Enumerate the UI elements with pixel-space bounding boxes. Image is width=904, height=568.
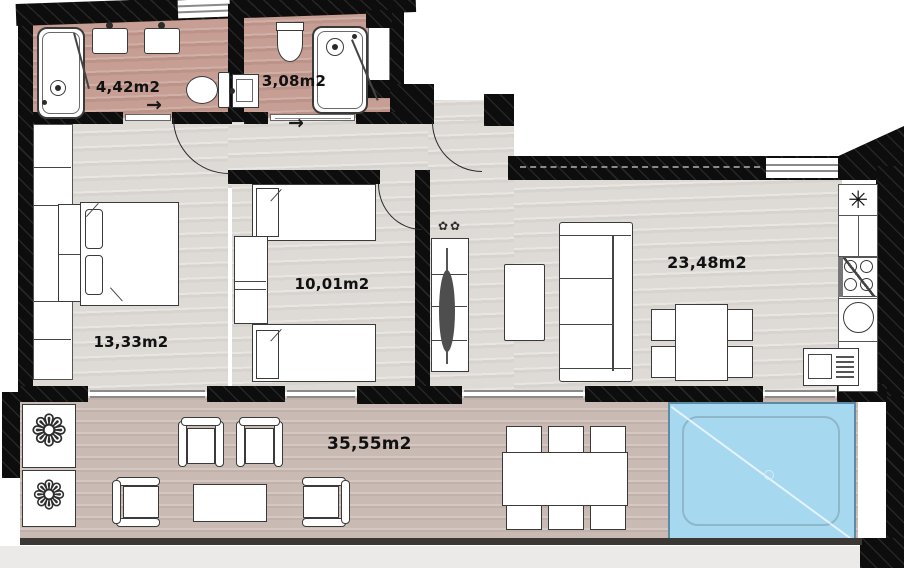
wall-living-top [508,156,840,180]
wall-boundary-4 [585,386,763,402]
entry-arrow-hall: → [288,114,304,133]
wall-terrace-left [2,392,20,478]
planter-top-flower-icon: ❁ [22,410,76,454]
wall-boundary-3 [357,386,462,404]
shower-2-drain-dot [332,44,338,50]
glass-door-2 [287,390,355,392]
hob [840,257,878,297]
outside-area-right [514,92,904,158]
sink-left [92,28,128,54]
shower-2-head-dot [352,34,357,39]
kitchen-sink [843,302,874,333]
glass-door-1b [90,396,205,398]
area-label-bedroom-double: 13,33m2 [92,333,170,351]
shower-head-dot [42,100,47,105]
wall-under-bath2-left [244,112,268,124]
terrace-armchair-2 [236,417,283,467]
outside-area-top [404,0,904,92]
wall-outer-right [876,166,904,398]
terrace-bottom-edge [20,538,862,545]
tv-screen [439,270,455,352]
kitchen-appliance [803,348,859,386]
terrace-armchair-1 [178,417,224,467]
area-label-bedroom-twin: 10,01m2 [293,275,371,293]
sink-2 [232,74,259,108]
wall-above-window [366,10,392,28]
entry-arrow-bathroom: → [146,96,162,115]
coffee-table-living [504,264,545,341]
pool [668,402,856,542]
ground-strip [0,546,904,568]
terrace-armchair-4 [300,477,350,527]
pillow-2 [85,255,103,295]
floor-plan: 4,42m2 → 3,08m2 → 13,33m2 10,01m2 ✿✿ [0,0,904,568]
area-label-terrace: 35,55m2 [327,434,409,454]
dining-table-living [675,304,728,381]
wall-outer-left [18,14,33,396]
hob-side-strip [838,257,843,297]
toilet-bowl [186,76,218,104]
single-bed-bottom-pillow [256,330,279,379]
wall-boundary-2 [207,386,285,402]
tv-plant-icon: ✿✿ [432,220,468,232]
glass-door-4 [765,390,835,392]
pool-drain [764,470,774,480]
area-label-living: 23,48m2 [666,253,748,272]
wall-bedroom-twin-top [228,170,380,184]
wall-dashed-line [520,166,760,168]
glass-door-4b [765,396,835,398]
sink-left-tap [106,22,113,29]
window-bathroom [368,28,390,80]
terrace-armchair-3 [112,477,162,527]
wall-entry-right [484,94,514,126]
glass-door-2b [287,396,355,398]
glass-door-3 [464,390,583,392]
wall-under-bath2-right [356,112,404,124]
sink-right [144,28,180,54]
shower-tray [37,27,85,119]
wall-corner-bottom-right [860,538,904,568]
sink-2-tap [229,88,235,94]
glass-door-1 [90,390,205,392]
planter-bottom-flower-icon: ❁ [22,476,76,516]
nightstand-column [234,236,268,324]
wall-boundary-1 [20,386,88,402]
glass-door-3b [464,396,583,398]
window-living [766,158,838,178]
shower-drain-dot [55,85,61,91]
sliding-door-bath2 [270,114,355,121]
sofa [559,222,633,382]
terrace-dining-table [502,452,628,506]
wall-bathroom-right [390,0,404,90]
area-label-bathroom: 3,08m2 [258,72,330,90]
window-bathroom-ensuite [178,0,231,18]
kitchen-star-icon: ✳ [838,188,878,212]
sink-right-tap [158,22,165,29]
terrace-coffee-table [193,484,267,522]
